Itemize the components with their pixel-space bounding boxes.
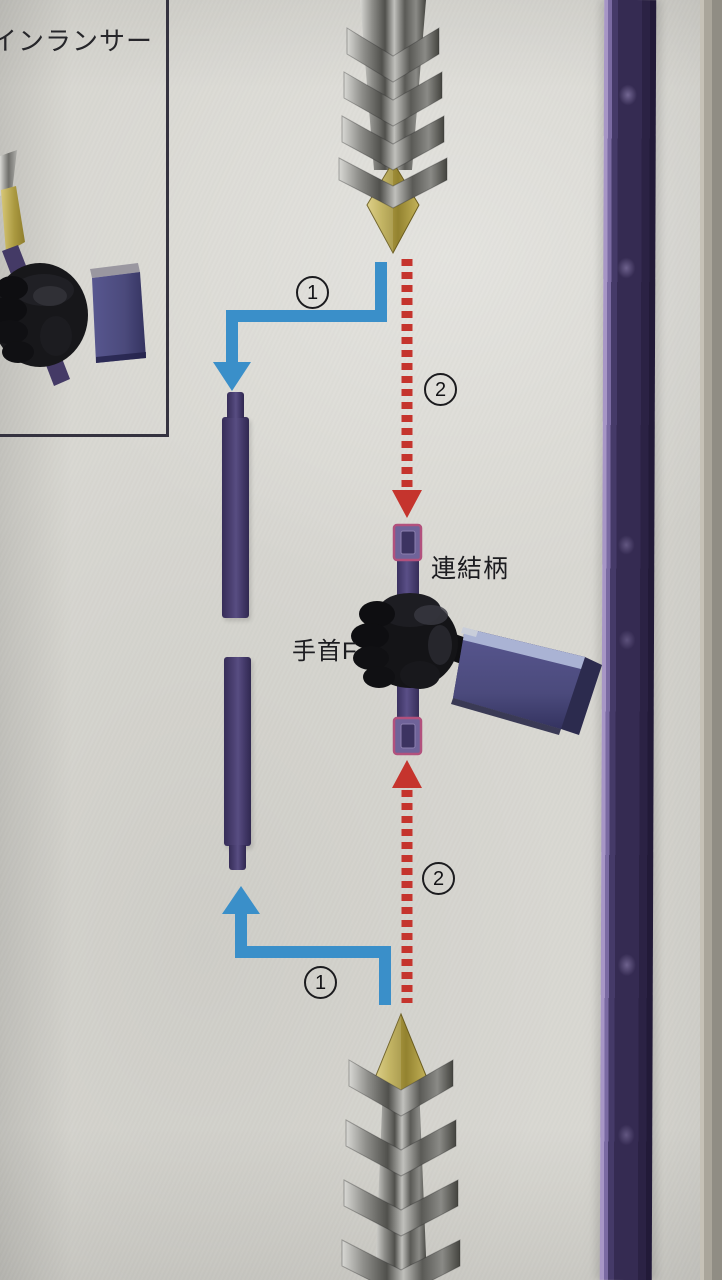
step-marker-2-bottom: 2 bbox=[422, 862, 455, 895]
blue-arrow-top bbox=[213, 262, 381, 391]
label-wrist-f: 手首F bbox=[292, 631, 358, 666]
manual-page-photo: インランサー bbox=[0, 0, 722, 1280]
step-marker-1-top: 1 bbox=[296, 276, 329, 309]
fist-icon bbox=[351, 593, 458, 689]
step-marker-2-top: 2 bbox=[424, 373, 457, 406]
red-dashed-arrow-top bbox=[392, 259, 422, 518]
step-marker-1-bottom: 1 bbox=[304, 966, 337, 999]
label-connector-handle: 連結柄 bbox=[431, 549, 509, 585]
red-dashed-arrow-bottom bbox=[392, 760, 422, 1003]
blue-arrow-bottom bbox=[222, 886, 385, 1005]
forearm-piece bbox=[451, 627, 602, 735]
